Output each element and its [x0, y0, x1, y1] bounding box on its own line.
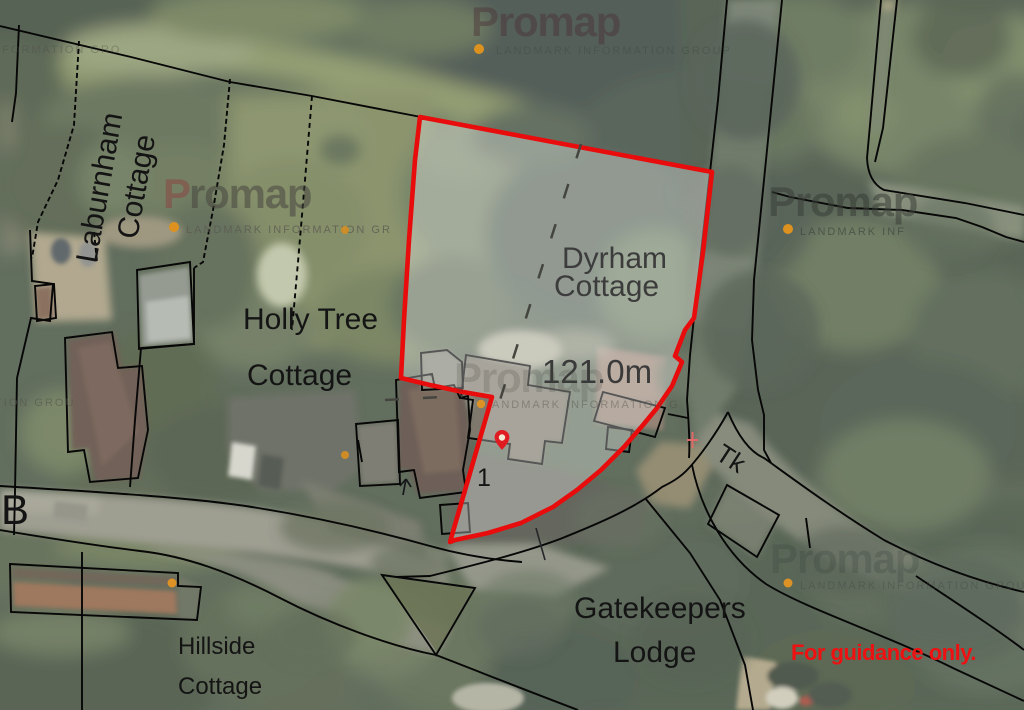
svg-text:LANDMARK INFORMATION GRO: LANDMARK INFORMATION GRO — [0, 44, 121, 56]
svg-text:Gatekeepers: Gatekeepers — [574, 592, 746, 625]
svg-text:Lodge: Lodge — [613, 636, 696, 669]
svg-text:1: 1 — [477, 464, 491, 492]
svg-text:Promap: Promap — [768, 178, 917, 225]
svg-text:Promap: Promap — [471, 0, 620, 45]
svg-text:For guidance only.: For guidance only. — [791, 640, 976, 665]
svg-text:LANDMARK INFORMATION GROUP: LANDMARK INFORMATION GROUP — [496, 45, 732, 57]
svg-text:Cottage: Cottage — [247, 359, 352, 392]
svg-text:Cottage: Cottage — [178, 673, 262, 700]
svg-text:Hillside: Hillside — [178, 633, 255, 660]
svg-text:LANDMARK INFORMATION GROUP: LANDMARK INFORMATION GROUP — [800, 580, 1024, 592]
svg-text:Cottage: Cottage — [554, 270, 659, 303]
svg-text:Promap: Promap — [454, 354, 603, 401]
svg-text:LANDMARK INF: LANDMARK INF — [800, 226, 906, 238]
svg-text:LANDMARK INFORMATION GROU: LANDMARK INFORMATION GROU — [0, 397, 75, 409]
svg-text:Promap: Promap — [770, 535, 919, 582]
svg-text:P: P — [163, 170, 190, 217]
svg-text:romap: romap — [189, 170, 311, 217]
svg-text:B: B — [1, 486, 29, 533]
svg-text:ANDMARK INFORMATION G: ANDMARK INFORMATION G — [492, 399, 680, 411]
svg-text:Holly Tree: Holly Tree — [243, 303, 378, 336]
svg-text:LANDMARK INFORMATION GR: LANDMARK INFORMATION GR — [186, 224, 392, 236]
